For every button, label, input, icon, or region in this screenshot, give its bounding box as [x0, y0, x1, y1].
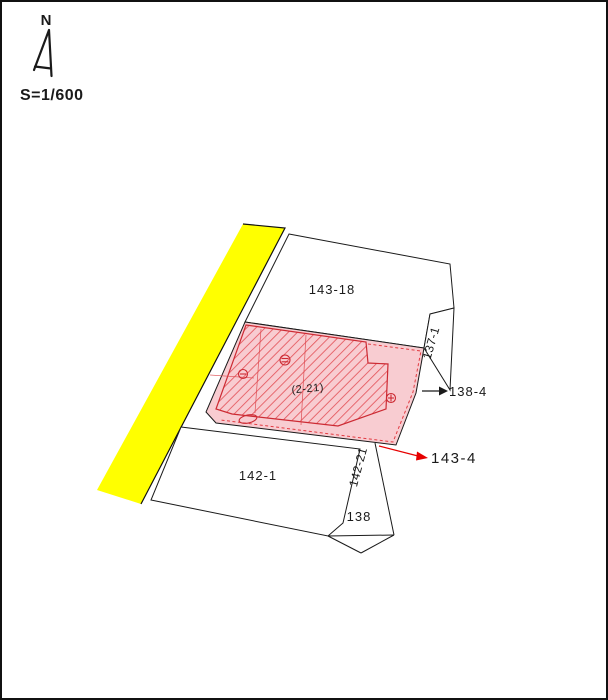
callout-line [379, 446, 418, 456]
callout-138-4: 138-4 [422, 384, 487, 399]
callout-label-143-4: 143-4 [431, 450, 477, 467]
parcel-label-138: 138 [347, 509, 372, 524]
scale-label: S=1/600 [20, 87, 84, 104]
cadastral-map-canvas: N S=1/600 [2, 2, 608, 700]
callout-label-138-4: 138-4 [449, 384, 487, 399]
parcel-label-143-18: 143-18 [309, 282, 355, 297]
north-label: N [41, 12, 52, 29]
arrowhead-icon [416, 452, 428, 461]
parcel-label-142-1: 142-1 [239, 468, 277, 483]
arrowhead-icon [439, 387, 448, 396]
callout-143-4: 143-4 [379, 446, 477, 467]
cadastral-map-page: N S=1/600 [0, 0, 608, 700]
north-arrow-icon [34, 30, 52, 76]
